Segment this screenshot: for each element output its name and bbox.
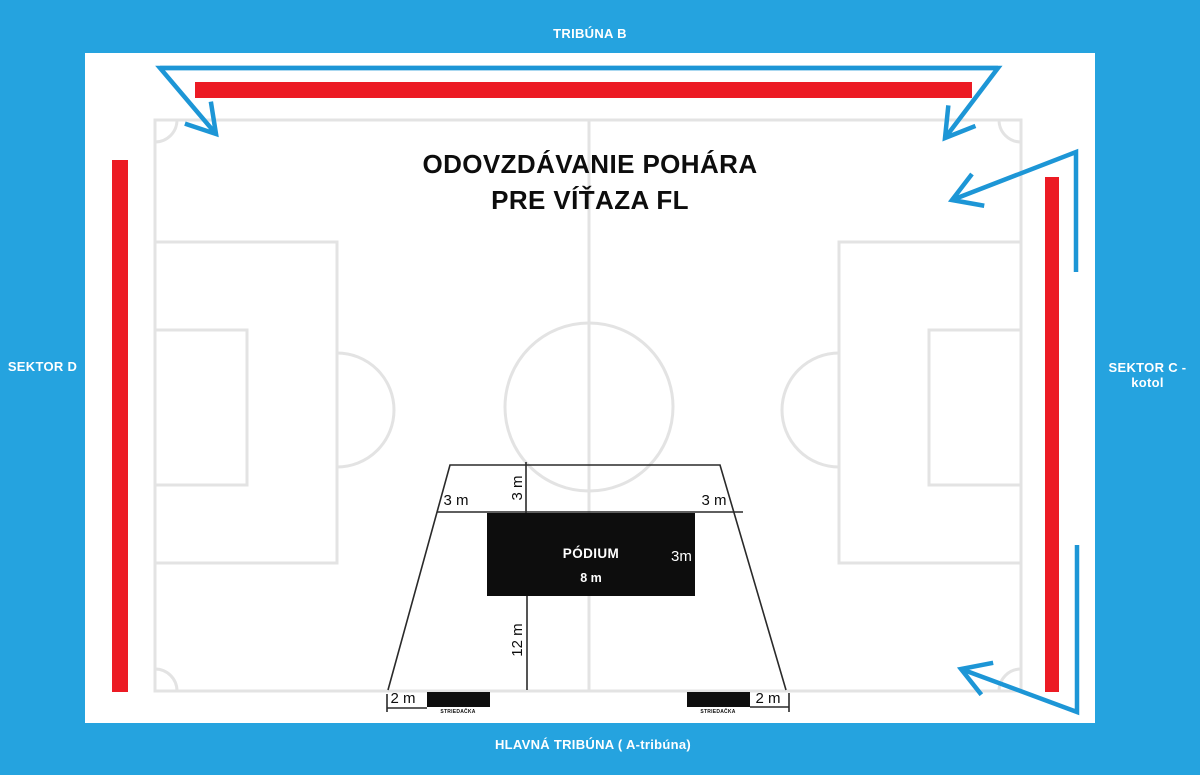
- dim-front-depth: 3 m: [508, 458, 528, 518]
- plan-title: ODOVZDÁVANIE POHÁRA PRE VÍŤAZA FL: [290, 146, 890, 218]
- bench-right-label: STRIEDAČKA: [693, 709, 743, 715]
- dim-bench-gap-right: 2 m: [738, 690, 798, 707]
- plan-title-line1: ODOVZDÁVANIE POHÁRA: [290, 146, 890, 182]
- dim-front-right: 3 m: [684, 492, 744, 509]
- dim-back-depth: 12 m: [508, 610, 528, 670]
- bench-left-label: STRIEDAČKA: [433, 709, 483, 715]
- podium-width-label: 8 m: [487, 571, 695, 585]
- stand-label-sektor-c: SEKTOR C - kotol: [1095, 360, 1200, 390]
- podium: PÓDIUM 8 m: [487, 513, 695, 596]
- stand-label-sektor-d: SEKTOR D: [0, 359, 85, 374]
- plan-title-line2: PRE VÍŤAZA FL: [290, 182, 890, 218]
- dim-bench-gap-left: 2 m: [373, 690, 433, 707]
- dim-front-left: 3 m: [426, 492, 486, 509]
- stadium-plan: TRIBÚNA B SEKTOR D SEKTOR C - kotol HLAV…: [0, 0, 1200, 775]
- stand-label-tribuna-b: TRIBÚNA B: [490, 26, 690, 41]
- podium-depth-label: 3m: [671, 548, 701, 565]
- stand-label-hlavna-tribuna: HLAVNÁ TRIBÚNA ( A-tribúna): [440, 737, 746, 752]
- podium-label: PÓDIUM: [487, 546, 695, 561]
